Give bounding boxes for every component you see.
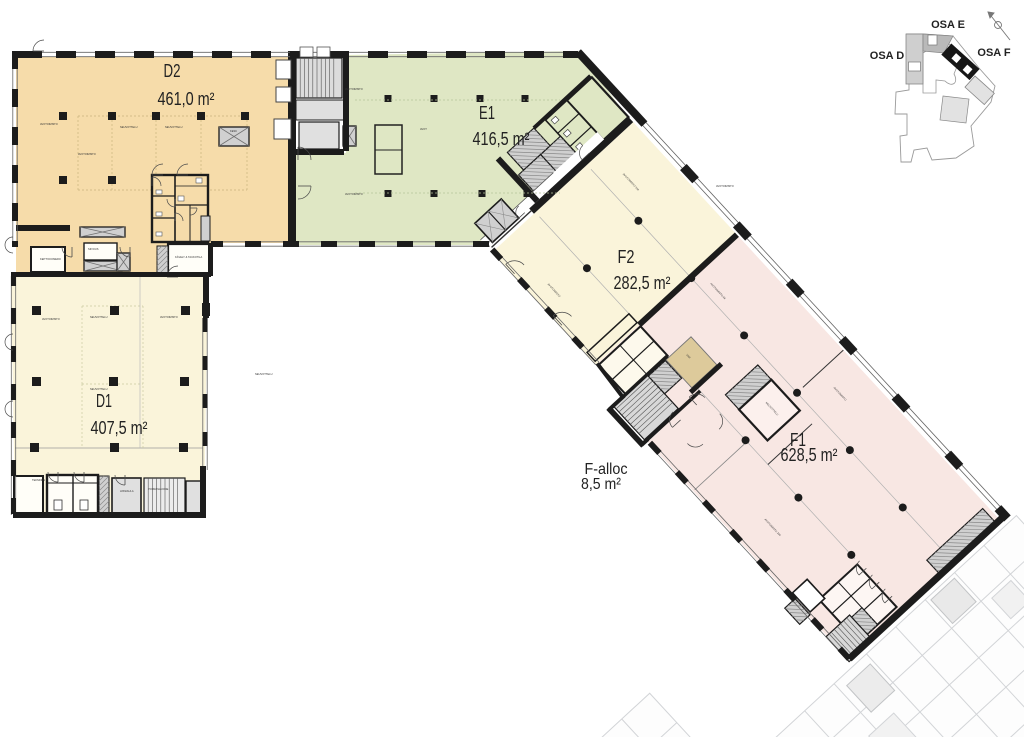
svg-text:AVOTOIMISTO: AVOTOIMISTO <box>345 87 363 91</box>
svg-text:AVOTOIMISTO: AVOTOIMISTO <box>716 184 734 188</box>
svg-text:KEITTOKOMERO: KEITTOKOMERO <box>40 257 61 261</box>
svg-text:SIIVOUS: SIIVOUS <box>88 247 99 251</box>
svg-text:282,5 m²: 282,5 m² <box>614 273 671 293</box>
svg-text:OSA D: OSA D <box>870 50 904 62</box>
svg-text:AVOTOIMISTO: AVOTOIMISTO <box>40 122 58 126</box>
svg-text:628,5 m²: 628,5 m² <box>781 445 838 465</box>
svg-text:NEUVOTTELU: NEUVOTTELU <box>120 125 138 129</box>
svg-text:461,0 m²: 461,0 m² <box>158 89 215 109</box>
svg-text:TEKNINEN: TEKNINEN <box>32 478 45 482</box>
svg-text:NEUVOTTELU: NEUVOTTELU <box>90 387 108 391</box>
svg-text:AVOTOIMISTO: AVOTOIMISTO <box>160 315 178 319</box>
svg-text:416,5 m²: 416,5 m² <box>473 129 530 149</box>
svg-text:407,5 m²: 407,5 m² <box>91 418 148 438</box>
svg-text:OSA F: OSA F <box>977 47 1010 59</box>
svg-text:8,5 m²: 8,5 m² <box>581 476 622 493</box>
svg-text:KÄVELY & TAUKOTILA: KÄVELY & TAUKOTILA <box>175 255 202 259</box>
svg-text:AVOT: AVOT <box>420 127 427 131</box>
svg-text:AVOTOIMISTO: AVOTOIMISTO <box>345 192 363 196</box>
svg-text:D1: D1 <box>96 391 112 411</box>
svg-text:PORRASHUONE: PORRASHUONE <box>148 487 169 491</box>
svg-text:NEUVOTTELU: NEUVOTTELU <box>90 315 108 319</box>
svg-text:HISSIAULA: HISSIAULA <box>120 489 134 493</box>
svg-text:E1: E1 <box>479 103 495 123</box>
svg-text:D2: D2 <box>164 61 181 81</box>
svg-text:NEUVOTTELU: NEUVOTTELU <box>255 372 273 376</box>
svg-text:NEUVOTTELU: NEUVOTTELU <box>165 125 183 129</box>
svg-text:AVOTOIMISTO: AVOTOIMISTO <box>78 152 96 156</box>
svg-text:OSA E: OSA E <box>931 19 965 31</box>
svg-text:AVOTOIMISTO: AVOTOIMISTO <box>42 317 60 321</box>
svg-text:F2: F2 <box>618 247 635 267</box>
svg-text:KESK: KESK <box>230 129 237 133</box>
